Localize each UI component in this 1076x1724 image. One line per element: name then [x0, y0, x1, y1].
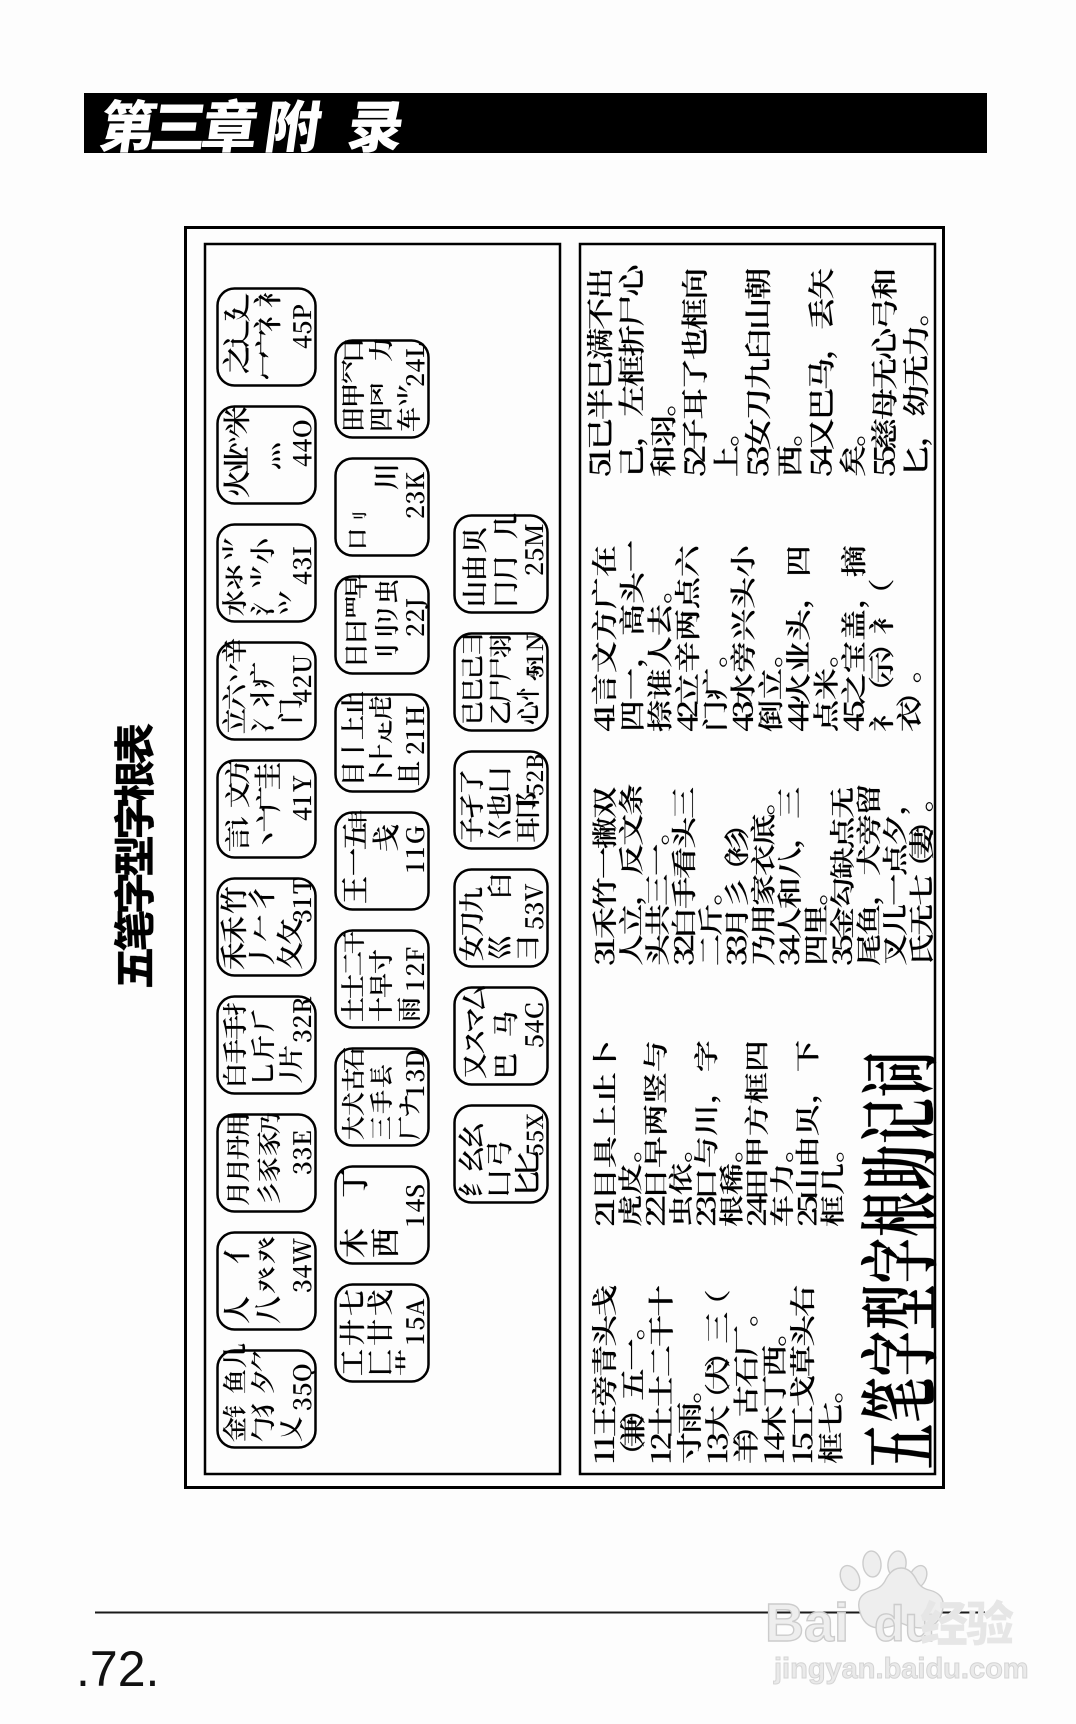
svg-text:.72.: .72.	[76, 1641, 159, 1697]
svg-text:jingyan.baidu.com: jingyan.baidu.com	[773, 1653, 1029, 1685]
svg-text:Bai: Bai	[765, 1593, 849, 1653]
